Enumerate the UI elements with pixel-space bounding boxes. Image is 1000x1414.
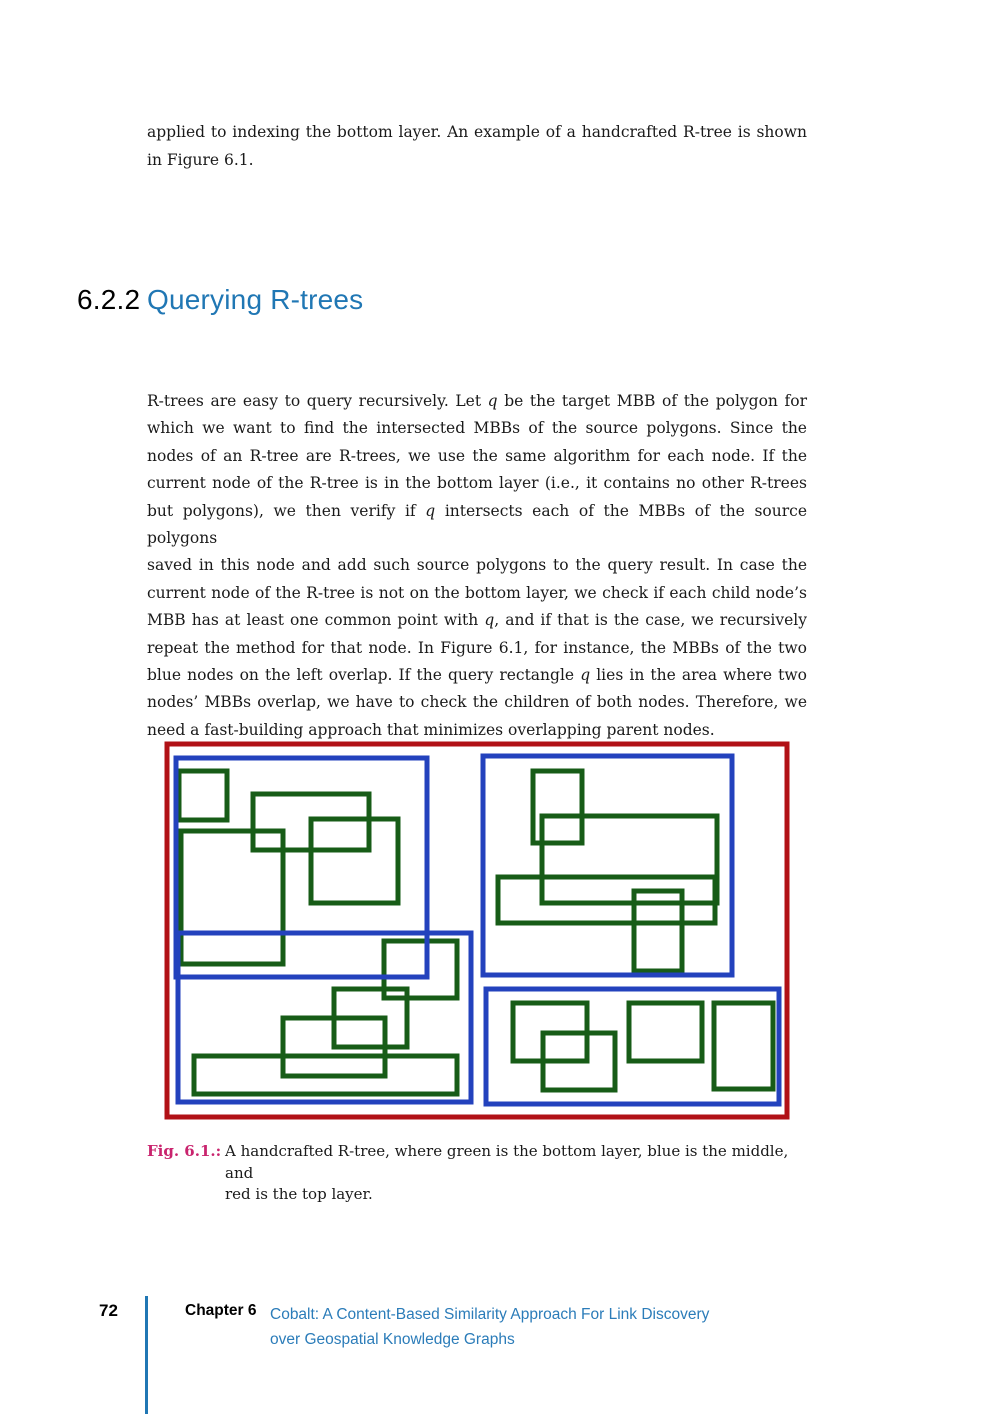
middle-layer-blue-mbb <box>483 756 732 975</box>
text-line: nodes’ MBBs overlap, we have to check th… <box>147 689 807 716</box>
text-line: current node of the R-tree is in the bot… <box>147 470 807 497</box>
bottom-layer-green-mbb <box>542 816 717 903</box>
text-line: current node of the R-tree is not on the… <box>147 580 807 607</box>
footer-divider <box>145 1296 148 1414</box>
text-line: in Figure 6.1. <box>147 146 807 174</box>
section-number: 6.2.2 <box>77 284 147 316</box>
bottom-layer-green-mbb <box>629 1003 702 1061</box>
text-line: MBB has at least one common point with q… <box>147 607 807 634</box>
text-line: but polygons), we then verify if q inter… <box>147 498 807 553</box>
page-number: 72 <box>99 1301 118 1321</box>
chapter-label: Chapter 6 <box>185 1302 257 1320</box>
section-title: Querying R-trees <box>147 284 363 315</box>
figure-caption: Fig. 6.1.: A handcrafted R-tree, where g… <box>147 1141 809 1206</box>
text-line: A handcrafted R-tree, where green is the… <box>225 1141 809 1184</box>
body-paragraph: R-trees are easy to query recursively. L… <box>147 388 807 744</box>
rtree-figure <box>160 736 800 1126</box>
text-line: red is the top layer. <box>225 1184 809 1206</box>
text-line: repeat the method for that node. In Figu… <box>147 635 807 662</box>
text-line: over Geospatial Knowledge Graphs <box>270 1327 740 1352</box>
text-line: blue nodes on the left overlap. If the q… <box>147 662 807 689</box>
page: applied to indexing the bottom layer. An… <box>0 0 1000 1414</box>
intro-paragraph: applied to indexing the bottom layer. An… <box>147 118 807 174</box>
text-line: which we want to find the intersected MB… <box>147 415 807 442</box>
text-line: Cobalt: A Content-Based Similarity Appro… <box>270 1302 740 1327</box>
text-line: applied to indexing the bottom layer. An… <box>147 118 807 146</box>
bottom-layer-green-mbb <box>179 771 227 820</box>
bottom-layer-green-mbb <box>714 1003 773 1089</box>
text-line: saved in this node and add such source p… <box>147 552 807 579</box>
text-line: nodes of an R-tree are R-trees, we use t… <box>147 443 807 470</box>
middle-layer-blue-mbb <box>176 758 427 977</box>
section-heading: 6.2.2Querying R-trees <box>77 284 363 316</box>
caption-label: Fig. 6.1.: <box>147 1141 221 1163</box>
text-line: R-trees are easy to query recursively. L… <box>147 388 807 415</box>
chapter-title: Cobalt: A Content-Based Similarity Appro… <box>270 1302 740 1352</box>
caption-text: A handcrafted R-tree, where green is the… <box>225 1141 809 1206</box>
bottom-layer-green-mbb <box>311 819 398 903</box>
